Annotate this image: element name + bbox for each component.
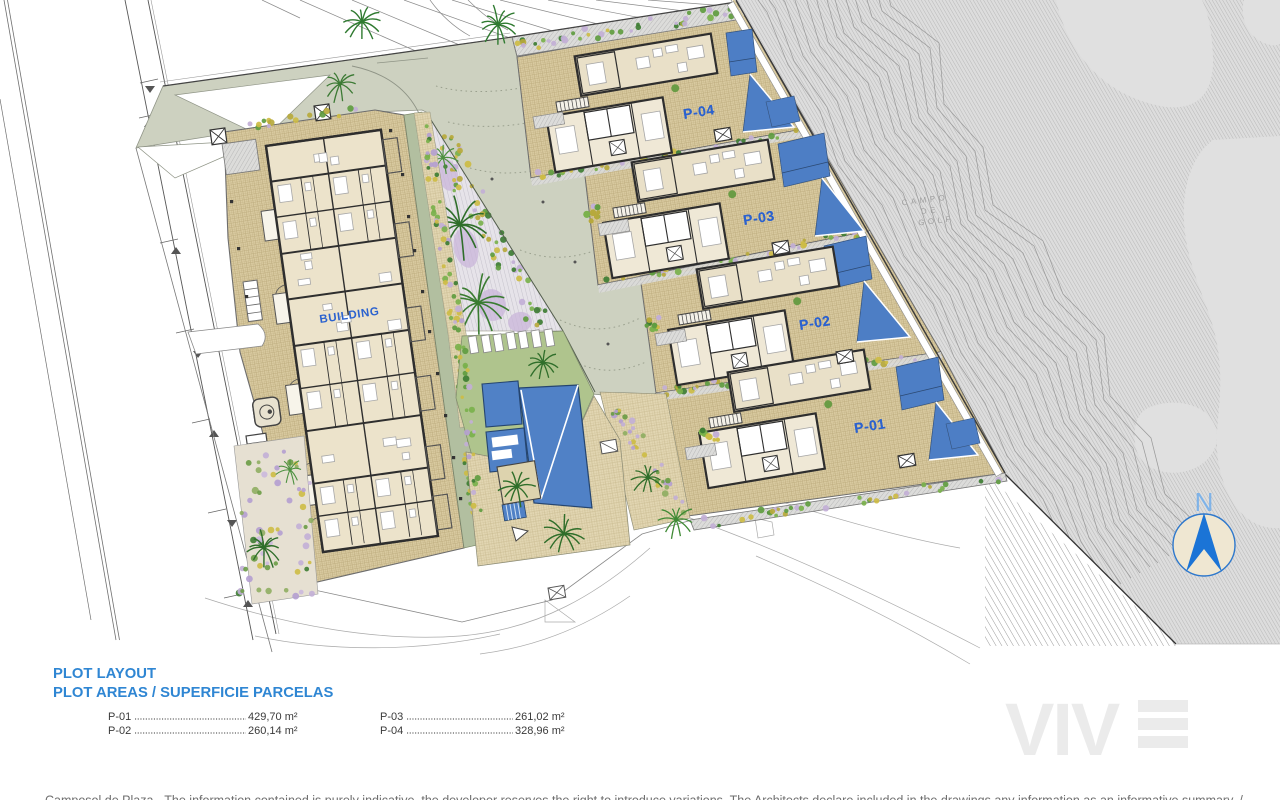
svg-text:P-03: P-03	[380, 711, 403, 723]
svg-text:P-01: P-01	[108, 711, 131, 723]
svg-text:P-02: P-02	[108, 725, 131, 737]
svg-text:328,96 m²: 328,96 m²	[515, 725, 565, 737]
svg-text:260,14 m²: 260,14 m²	[248, 725, 298, 737]
svg-text:261,02 m²: 261,02 m²	[515, 711, 565, 723]
svg-text:429,70 m²: 429,70 m²	[248, 711, 298, 723]
svg-text:PLOT AREAS / SUPERFICIE PARCEL: PLOT AREAS / SUPERFICIE PARCELAS	[53, 685, 333, 701]
svg-text:Camposol de Plaza - The inform: Camposol de Plaza - The information cont…	[45, 794, 1243, 800]
svg-text:N: N	[1195, 487, 1214, 517]
svg-text:VIV: VIV	[1005, 688, 1120, 771]
svg-text:P-04: P-04	[380, 725, 403, 737]
svg-text:PLOT LAYOUT: PLOT LAYOUT	[53, 666, 156, 682]
